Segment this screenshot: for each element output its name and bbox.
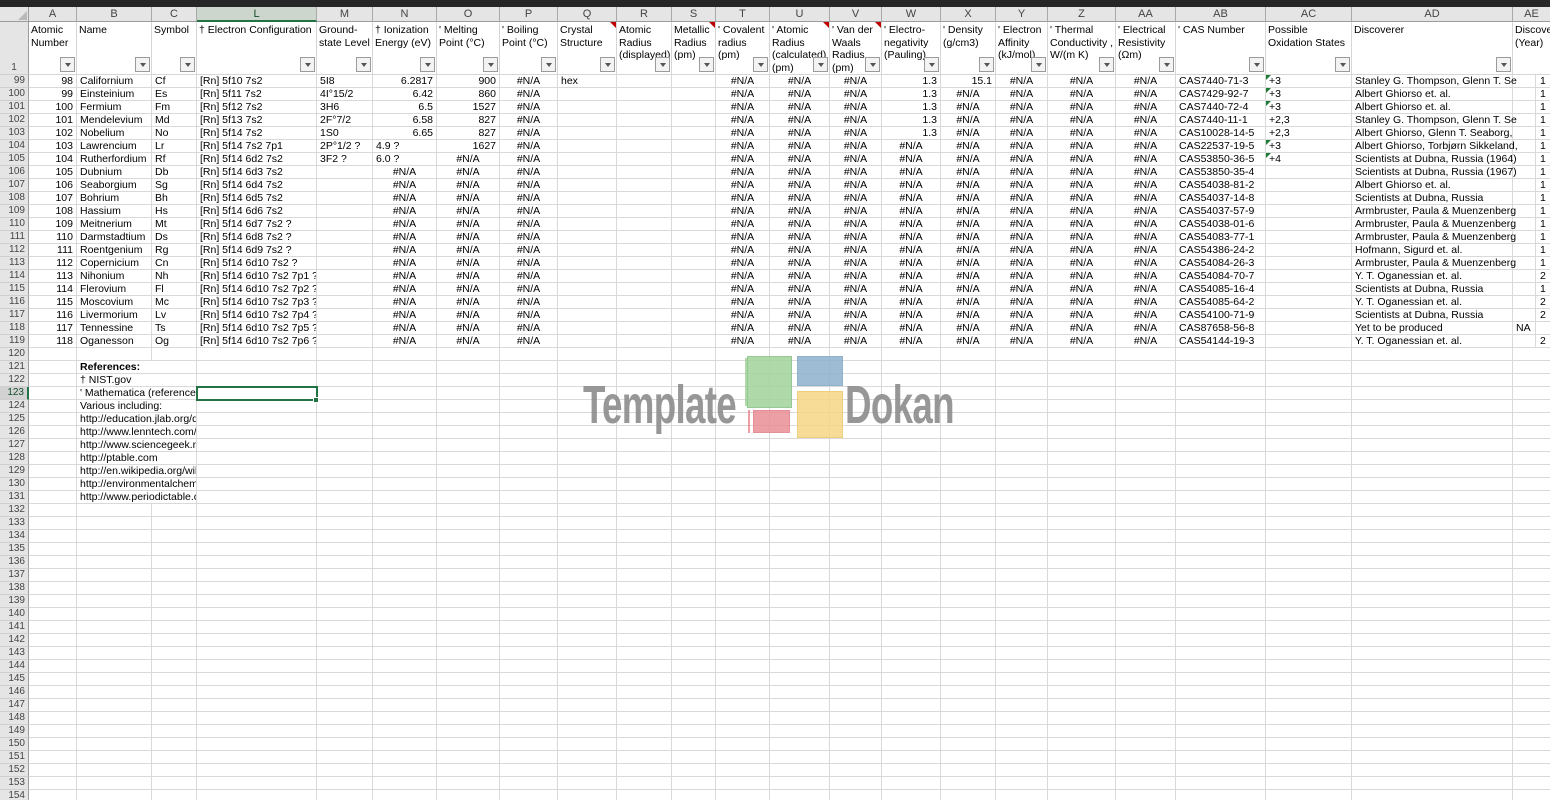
cell-Z109[interactable]: #N/A xyxy=(1048,205,1116,218)
filter-dropdown-button-O[interactable] xyxy=(483,57,498,72)
cell-P149[interactable] xyxy=(500,725,558,738)
cell-X146[interactable] xyxy=(941,686,996,699)
cell-AE150[interactable] xyxy=(1513,738,1550,751)
cell-P113[interactable]: #N/A xyxy=(500,257,558,270)
row-header-127[interactable]: 127 xyxy=(0,439,29,452)
cell-R108[interactable] xyxy=(617,192,672,205)
cell-M99[interactable]: 5I8 xyxy=(317,75,373,88)
cell-year-partial-116[interactable]: 2 xyxy=(1536,296,1550,309)
cell-S152[interactable] xyxy=(672,764,716,777)
cell-AD125[interactable] xyxy=(1352,413,1513,426)
cell-L131[interactable] xyxy=(197,491,317,504)
cell-W141[interactable] xyxy=(882,621,941,634)
cell-N99[interactable]: 6.2817 xyxy=(373,75,437,88)
cell-AD103[interactable]: Albert Ghiorso, Glenn T. Seaborg, xyxy=(1352,127,1513,140)
cell-N116[interactable]: #N/A xyxy=(373,296,437,309)
cell-AD107[interactable]: Albert Ghiorso et. al. xyxy=(1352,179,1513,192)
cell-T119[interactable]: #N/A xyxy=(716,335,770,348)
cell-T111[interactable]: #N/A xyxy=(716,231,770,244)
cell-O130[interactable] xyxy=(437,478,500,491)
cell-M112[interactable] xyxy=(317,244,373,257)
cell-W142[interactable] xyxy=(882,634,941,647)
cell-AA124[interactable] xyxy=(1116,400,1176,413)
cell-C108[interactable]: Bh xyxy=(152,192,197,205)
cell-AE100[interactable] xyxy=(1513,88,1536,101)
cell-W105[interactable]: #N/A xyxy=(882,153,941,166)
cell-AD109[interactable]: Armbruster, Paula & Muenzenberg xyxy=(1352,205,1513,218)
cell-R128[interactable] xyxy=(617,452,672,465)
cell-V141[interactable] xyxy=(830,621,882,634)
cell-W110[interactable]: #N/A xyxy=(882,218,941,231)
cell-AA110[interactable]: #N/A xyxy=(1116,218,1176,231)
cell-AD133[interactable] xyxy=(1352,517,1513,530)
cell-AE107[interactable] xyxy=(1513,179,1536,192)
cell-O103[interactable]: 827 xyxy=(437,127,500,140)
cell-Z118[interactable]: #N/A xyxy=(1048,322,1116,335)
cell-M138[interactable] xyxy=(317,582,373,595)
cell-O117[interactable]: #N/A xyxy=(437,309,500,322)
cell-W107[interactable]: #N/A xyxy=(882,179,941,192)
cell-V139[interactable] xyxy=(830,595,882,608)
cell-X128[interactable] xyxy=(941,452,996,465)
row-header-129[interactable]: 129 xyxy=(0,465,29,478)
cell-Z140[interactable] xyxy=(1048,608,1116,621)
cell-AA149[interactable] xyxy=(1116,725,1176,738)
cell-V115[interactable]: #N/A xyxy=(830,283,882,296)
cell-Q116[interactable] xyxy=(558,296,617,309)
cell-P134[interactable] xyxy=(500,530,558,543)
cell-AE114[interactable] xyxy=(1513,270,1536,283)
row-header-141[interactable]: 141 xyxy=(0,621,29,634)
cell-Y146[interactable] xyxy=(996,686,1048,699)
cell-AC134[interactable] xyxy=(1266,530,1352,543)
cell-AC123[interactable] xyxy=(1266,387,1352,400)
cell-L111[interactable]: [Rn] 5f14 6d8 7s2 ? xyxy=(197,231,317,244)
cell-R115[interactable] xyxy=(617,283,672,296)
cell-M114[interactable] xyxy=(317,270,373,283)
cell-V116[interactable]: #N/A xyxy=(830,296,882,309)
cell-N101[interactable]: 6.5 xyxy=(373,101,437,114)
cell-V110[interactable]: #N/A xyxy=(830,218,882,231)
cell-Q148[interactable] xyxy=(558,712,617,725)
cell-L127[interactable] xyxy=(197,439,317,452)
cell-N124[interactable] xyxy=(373,400,437,413)
cell-W117[interactable]: #N/A xyxy=(882,309,941,322)
cell-AB118[interactable]: CAS87658-56-8 xyxy=(1176,322,1266,335)
cell-AD136[interactable] xyxy=(1352,556,1513,569)
cell-AE122[interactable] xyxy=(1513,374,1550,387)
cell-X119[interactable]: #N/A xyxy=(941,335,996,348)
cell-T134[interactable] xyxy=(716,530,770,543)
cell-R135[interactable] xyxy=(617,543,672,556)
cell-N106[interactable]: #N/A xyxy=(373,166,437,179)
cell-AA137[interactable] xyxy=(1116,569,1176,582)
cell-T99[interactable]: #N/A xyxy=(716,75,770,88)
cell-P120[interactable] xyxy=(500,348,558,361)
cell-A131[interactable] xyxy=(29,491,77,504)
cell-R154[interactable] xyxy=(617,790,672,800)
cell-Q153[interactable] xyxy=(558,777,617,790)
cell-O154[interactable] xyxy=(437,790,500,800)
cell-AB151[interactable] xyxy=(1176,751,1266,764)
cell-T112[interactable]: #N/A xyxy=(716,244,770,257)
cell-V133[interactable] xyxy=(830,517,882,530)
filter-dropdown-button-AB[interactable] xyxy=(1249,57,1264,72)
cell-W100[interactable]: 1.3 xyxy=(882,88,941,101)
filter-dropdown-button-Y[interactable] xyxy=(1031,57,1046,72)
cell-P139[interactable] xyxy=(500,595,558,608)
cell-S149[interactable] xyxy=(672,725,716,738)
cell-B152[interactable] xyxy=(77,764,152,777)
cell-B105[interactable]: Rutherfordium xyxy=(77,153,152,166)
cell-AE127[interactable] xyxy=(1513,439,1550,452)
cell-Q142[interactable] xyxy=(558,634,617,647)
cell-U154[interactable] xyxy=(770,790,830,800)
cell-W104[interactable]: #N/A xyxy=(882,140,941,153)
cell-AA142[interactable] xyxy=(1116,634,1176,647)
cell-B108[interactable]: Bohrium xyxy=(77,192,152,205)
cell-C137[interactable] xyxy=(152,569,197,582)
cell-AD139[interactable] xyxy=(1352,595,1513,608)
row-header-131[interactable]: 131 xyxy=(0,491,29,504)
cell-Y145[interactable] xyxy=(996,673,1048,686)
cell-AA118[interactable]: #N/A xyxy=(1116,322,1176,335)
row-header-135[interactable]: 135 xyxy=(0,543,29,556)
cell-Z128[interactable] xyxy=(1048,452,1116,465)
cell-B139[interactable] xyxy=(77,595,152,608)
cell-O138[interactable] xyxy=(437,582,500,595)
filter-dropdown-button-AD[interactable] xyxy=(1496,57,1511,72)
cell-AB108[interactable]: CAS54037-14-8 xyxy=(1176,192,1266,205)
row-header-107[interactable]: 107 xyxy=(0,179,29,192)
cell-Y110[interactable]: #N/A xyxy=(996,218,1048,231)
cell-V149[interactable] xyxy=(830,725,882,738)
cell-L104[interactable]: [Rn] 5f14 7s2 7p1 xyxy=(197,140,317,153)
cell-C102[interactable]: Md xyxy=(152,114,197,127)
cell-W103[interactable]: 1.3 xyxy=(882,127,941,140)
cell-T107[interactable]: #N/A xyxy=(716,179,770,192)
cell-Y144[interactable] xyxy=(996,660,1048,673)
cell-P101[interactable]: #N/A xyxy=(500,101,558,114)
cell-Q147[interactable] xyxy=(558,699,617,712)
cell-X147[interactable] xyxy=(941,699,996,712)
cell-A99[interactable]: 98 xyxy=(29,75,77,88)
cell-M106[interactable] xyxy=(317,166,373,179)
cell-U118[interactable]: #N/A xyxy=(770,322,830,335)
cell-W128[interactable] xyxy=(882,452,941,465)
cell-U117[interactable]: #N/A xyxy=(770,309,830,322)
cell-V100[interactable]: #N/A xyxy=(830,88,882,101)
cell-AC140[interactable] xyxy=(1266,608,1352,621)
cell-L136[interactable] xyxy=(197,556,317,569)
cell-AA134[interactable] xyxy=(1116,530,1176,543)
cell-N128[interactable] xyxy=(373,452,437,465)
cell-S105[interactable] xyxy=(672,153,716,166)
cell-Z116[interactable]: #N/A xyxy=(1048,296,1116,309)
cell-M103[interactable]: 1S0 xyxy=(317,127,373,140)
filter-dropdown-button-N[interactable] xyxy=(420,57,435,72)
cell-year-partial-119[interactable]: 2 xyxy=(1536,335,1550,348)
cell-AB140[interactable] xyxy=(1176,608,1266,621)
cell-C147[interactable] xyxy=(152,699,197,712)
cell-S142[interactable] xyxy=(672,634,716,647)
cell-S111[interactable] xyxy=(672,231,716,244)
cell-Y131[interactable] xyxy=(996,491,1048,504)
cell-AE117[interactable] xyxy=(1513,309,1536,322)
cell-A137[interactable] xyxy=(29,569,77,582)
row-header-125[interactable]: 125 xyxy=(0,413,29,426)
cell-Z100[interactable]: #N/A xyxy=(1048,88,1116,101)
cell-L151[interactable] xyxy=(197,751,317,764)
column-header-N[interactable]: N xyxy=(373,7,437,22)
cell-T110[interactable]: #N/A xyxy=(716,218,770,231)
cell-N141[interactable] xyxy=(373,621,437,634)
cell-Q133[interactable] xyxy=(558,517,617,530)
column-header-P[interactable]: P xyxy=(500,7,558,22)
cell-C118[interactable]: Ts xyxy=(152,322,197,335)
cell-L128[interactable] xyxy=(197,452,317,465)
cell-R100[interactable] xyxy=(617,88,672,101)
cell-X112[interactable]: #N/A xyxy=(941,244,996,257)
cell-AB116[interactable]: CAS54085-64-2 xyxy=(1176,296,1266,309)
cell-AE111[interactable] xyxy=(1513,231,1536,244)
cell-X106[interactable]: #N/A xyxy=(941,166,996,179)
cell-AC122[interactable] xyxy=(1266,374,1352,387)
cell-A127[interactable] xyxy=(29,439,77,452)
cell-AD138[interactable] xyxy=(1352,582,1513,595)
cell-V154[interactable] xyxy=(830,790,882,800)
cell-R119[interactable] xyxy=(617,335,672,348)
cell-C134[interactable] xyxy=(152,530,197,543)
cell-AE145[interactable] xyxy=(1513,673,1550,686)
cell-L109[interactable]: [Rn] 5f14 6d6 7s2 xyxy=(197,205,317,218)
cell-P141[interactable] xyxy=(500,621,558,634)
cell-A147[interactable] xyxy=(29,699,77,712)
cell-AC115[interactable] xyxy=(1266,283,1352,296)
cell-Q139[interactable] xyxy=(558,595,617,608)
cell-A125[interactable] xyxy=(29,413,77,426)
cell-AA132[interactable] xyxy=(1116,504,1176,517)
cell-M151[interactable] xyxy=(317,751,373,764)
cell-Q115[interactable] xyxy=(558,283,617,296)
cell-A101[interactable]: 100 xyxy=(29,101,77,114)
cell-M104[interactable]: 2P°1/2 ? xyxy=(317,140,373,153)
cell-AA109[interactable]: #N/A xyxy=(1116,205,1176,218)
cell-O120[interactable] xyxy=(437,348,500,361)
cell-Y104[interactable]: #N/A xyxy=(996,140,1048,153)
cell-L135[interactable] xyxy=(197,543,317,556)
cell-R134[interactable] xyxy=(617,530,672,543)
cell-AD124[interactable] xyxy=(1352,400,1513,413)
cell-AC111[interactable] xyxy=(1266,231,1352,244)
cell-M134[interactable] xyxy=(317,530,373,543)
cell-year-partial-109[interactable]: 1 xyxy=(1536,205,1550,218)
cell-M145[interactable] xyxy=(317,673,373,686)
cell-AB126[interactable] xyxy=(1176,426,1266,439)
cell-C114[interactable]: Nh xyxy=(152,270,197,283)
cell-U106[interactable]: #N/A xyxy=(770,166,830,179)
cell-AA127[interactable] xyxy=(1116,439,1176,452)
cell-AE137[interactable] xyxy=(1513,569,1550,582)
cell-O123[interactable] xyxy=(437,387,500,400)
cell-P100[interactable]: #N/A xyxy=(500,88,558,101)
cell-AB142[interactable] xyxy=(1176,634,1266,647)
cell-AA104[interactable]: #N/A xyxy=(1116,140,1176,153)
column-header-X[interactable]: X xyxy=(941,7,996,22)
cell-B120[interactable] xyxy=(77,348,152,361)
cell-C103[interactable]: No xyxy=(152,127,197,140)
cell-U116[interactable]: #N/A xyxy=(770,296,830,309)
cell-Y143[interactable] xyxy=(996,647,1048,660)
cell-T132[interactable] xyxy=(716,504,770,517)
cell-T142[interactable] xyxy=(716,634,770,647)
field-header-N[interactable]: † Ionization Energy (eV) xyxy=(373,22,437,75)
cell-B112[interactable]: Roentgenium xyxy=(77,244,152,257)
cell-X100[interactable]: #N/A xyxy=(941,88,996,101)
cell-AA112[interactable]: #N/A xyxy=(1116,244,1176,257)
cell-AE118[interactable]: NA xyxy=(1513,322,1536,335)
cell-W143[interactable] xyxy=(882,647,941,660)
cell-O134[interactable] xyxy=(437,530,500,543)
cell-T140[interactable] xyxy=(716,608,770,621)
cell-AC113[interactable] xyxy=(1266,257,1352,270)
cell-Q105[interactable] xyxy=(558,153,617,166)
cell-A143[interactable] xyxy=(29,647,77,660)
cell-Q102[interactable] xyxy=(558,114,617,127)
cell-U133[interactable] xyxy=(770,517,830,530)
cell-L142[interactable] xyxy=(197,634,317,647)
cell-L106[interactable]: [Rn] 5f14 6d3 7s2 xyxy=(197,166,317,179)
cell-Y130[interactable] xyxy=(996,478,1048,491)
cell-A135[interactable] xyxy=(29,543,77,556)
cell-T136[interactable] xyxy=(716,556,770,569)
cell-Y100[interactable]: #N/A xyxy=(996,88,1048,101)
cell-Z117[interactable]: #N/A xyxy=(1048,309,1116,322)
cell-AA143[interactable] xyxy=(1116,647,1176,660)
cell-W145[interactable] xyxy=(882,673,941,686)
cell-AE146[interactable] xyxy=(1513,686,1550,699)
cell-AE132[interactable] xyxy=(1513,504,1550,517)
cell-R118[interactable] xyxy=(617,322,672,335)
cell-AC128[interactable] xyxy=(1266,452,1352,465)
filter-dropdown-button-A[interactable] xyxy=(60,57,75,72)
cell-N122[interactable] xyxy=(373,374,437,387)
cell-AD106[interactable]: Scientists at Dubna, Russia (1967) xyxy=(1352,166,1513,179)
cell-AE151[interactable] xyxy=(1513,751,1550,764)
cell-U101[interactable]: #N/A xyxy=(770,101,830,114)
cell-S138[interactable] xyxy=(672,582,716,595)
cell-AE129[interactable] xyxy=(1513,465,1550,478)
fill-handle[interactable] xyxy=(313,397,319,403)
cell-N134[interactable] xyxy=(373,530,437,543)
cell-S128[interactable] xyxy=(672,452,716,465)
cell-M149[interactable] xyxy=(317,725,373,738)
cell-V119[interactable]: #N/A xyxy=(830,335,882,348)
cell-AB134[interactable] xyxy=(1176,530,1266,543)
cell-V135[interactable] xyxy=(830,543,882,556)
cell-A130[interactable] xyxy=(29,478,77,491)
cell-L118[interactable]: [Rn] 5f14 6d10 7s2 7p5 ? xyxy=(197,322,317,335)
cell-X141[interactable] xyxy=(941,621,996,634)
cell-A117[interactable]: 116 xyxy=(29,309,77,322)
cell-X142[interactable] xyxy=(941,634,996,647)
column-header-L[interactable]: L xyxy=(197,7,317,22)
cell-C106[interactable]: Db xyxy=(152,166,197,179)
cell-N145[interactable] xyxy=(373,673,437,686)
cell-U114[interactable]: #N/A xyxy=(770,270,830,283)
cell-Z105[interactable]: #N/A xyxy=(1048,153,1116,166)
cell-AE154[interactable] xyxy=(1513,790,1550,800)
cell-P140[interactable] xyxy=(500,608,558,621)
cell-Z119[interactable]: #N/A xyxy=(1048,335,1116,348)
cell-N113[interactable]: #N/A xyxy=(373,257,437,270)
cell-X138[interactable] xyxy=(941,582,996,595)
cell-AB136[interactable] xyxy=(1176,556,1266,569)
cell-Q112[interactable] xyxy=(558,244,617,257)
cell-T139[interactable] xyxy=(716,595,770,608)
cell-X132[interactable] xyxy=(941,504,996,517)
cell-Q144[interactable] xyxy=(558,660,617,673)
cell-M105[interactable]: 3F2 ? xyxy=(317,153,373,166)
row-header-151[interactable]: 151 xyxy=(0,751,29,764)
cell-S133[interactable] xyxy=(672,517,716,530)
cell-V103[interactable]: #N/A xyxy=(830,127,882,140)
cell-T144[interactable] xyxy=(716,660,770,673)
cell-AD140[interactable] xyxy=(1352,608,1513,621)
cell-B134[interactable] xyxy=(77,530,152,543)
cell-P147[interactable] xyxy=(500,699,558,712)
cell-V153[interactable] xyxy=(830,777,882,790)
cell-AD119[interactable]: Y. T. Oganessian et. al. xyxy=(1352,335,1513,348)
cell-Z101[interactable]: #N/A xyxy=(1048,101,1116,114)
cell-V112[interactable]: #N/A xyxy=(830,244,882,257)
cell-Z99[interactable]: #N/A xyxy=(1048,75,1116,88)
cell-AB132[interactable] xyxy=(1176,504,1266,517)
reference-line[interactable]: Various including: xyxy=(77,400,197,413)
cell-A146[interactable] xyxy=(29,686,77,699)
cell-B146[interactable] xyxy=(77,686,152,699)
cell-Z137[interactable] xyxy=(1048,569,1116,582)
cell-AB112[interactable]: CAS54386-24-2 xyxy=(1176,244,1266,257)
field-header-U[interactable]: ' Atomic Radius (calculated) (pm) xyxy=(770,22,830,75)
reference-line[interactable]: http://www.lenntech.com/p xyxy=(77,426,197,439)
cell-Y128[interactable] xyxy=(996,452,1048,465)
cell-L143[interactable] xyxy=(197,647,317,660)
cell-B140[interactable] xyxy=(77,608,152,621)
cell-A123[interactable] xyxy=(29,387,77,400)
cell-X118[interactable]: #N/A xyxy=(941,322,996,335)
field-header-B[interactable]: Name xyxy=(77,22,152,75)
cell-A132[interactable] xyxy=(29,504,77,517)
row-header-113[interactable]: 113 xyxy=(0,257,29,270)
cell-C105[interactable]: Rf xyxy=(152,153,197,166)
cell-S100[interactable] xyxy=(672,88,716,101)
cell-V107[interactable]: #N/A xyxy=(830,179,882,192)
cell-C154[interactable] xyxy=(152,790,197,800)
cell-Y99[interactable]: #N/A xyxy=(996,75,1048,88)
cell-T117[interactable]: #N/A xyxy=(716,309,770,322)
cell-AB147[interactable] xyxy=(1176,699,1266,712)
cell-W115[interactable]: #N/A xyxy=(882,283,941,296)
column-header-A[interactable]: A xyxy=(29,7,77,22)
cell-Y140[interactable] xyxy=(996,608,1048,621)
cell-A114[interactable]: 113 xyxy=(29,270,77,283)
cell-Z145[interactable] xyxy=(1048,673,1116,686)
cell-AA135[interactable] xyxy=(1116,543,1176,556)
cell-A136[interactable] xyxy=(29,556,77,569)
cell-R136[interactable] xyxy=(617,556,672,569)
cell-AE125[interactable] xyxy=(1513,413,1550,426)
